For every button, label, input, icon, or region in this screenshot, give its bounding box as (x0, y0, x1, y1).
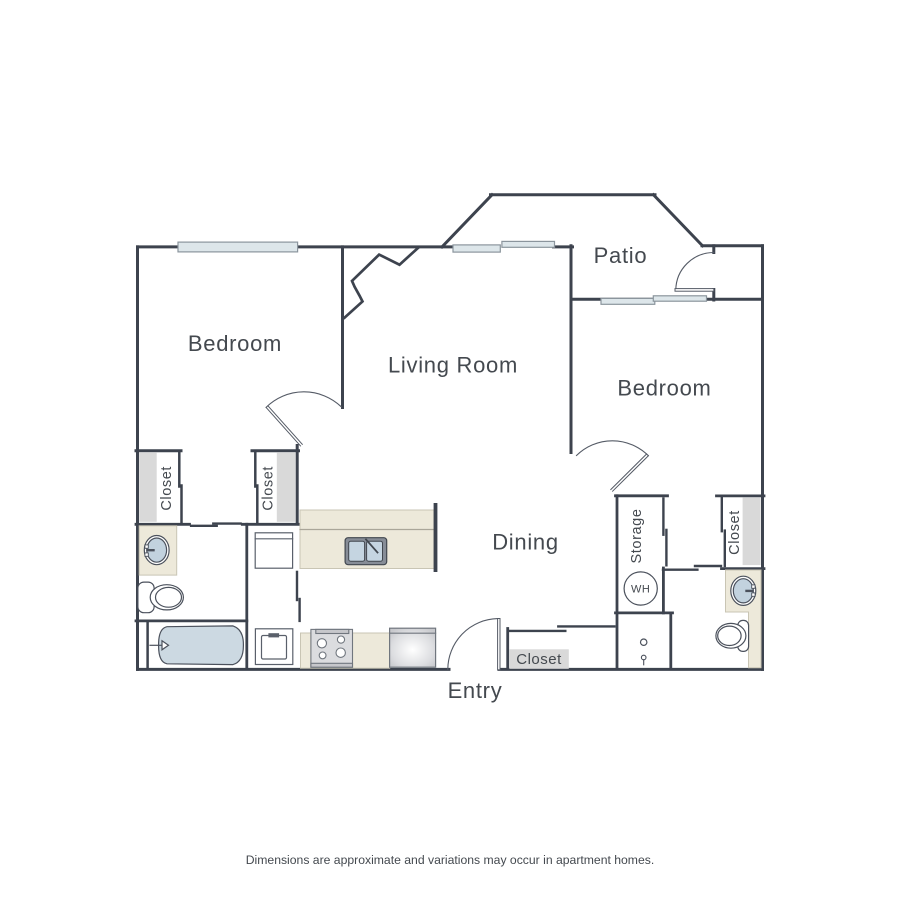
svg-text:Dimensions are approximate and: Dimensions are approximate and variation… (246, 853, 654, 867)
svg-text:Storage: Storage (629, 509, 645, 564)
svg-text:Entry: Entry (448, 678, 503, 703)
svg-text:Closet: Closet (261, 466, 277, 511)
svg-text:Bedroom: Bedroom (617, 376, 711, 401)
svg-text:Dining: Dining (492, 530, 559, 555)
svg-text:Patio: Patio (594, 243, 648, 268)
svg-text:Closet: Closet (159, 466, 175, 511)
svg-text:Living Room: Living Room (388, 353, 518, 378)
svg-text:Closet: Closet (516, 651, 562, 668)
svg-text:Bedroom: Bedroom (188, 331, 282, 356)
svg-text:WH: WH (631, 584, 650, 596)
svg-text:Closet: Closet (727, 510, 743, 555)
